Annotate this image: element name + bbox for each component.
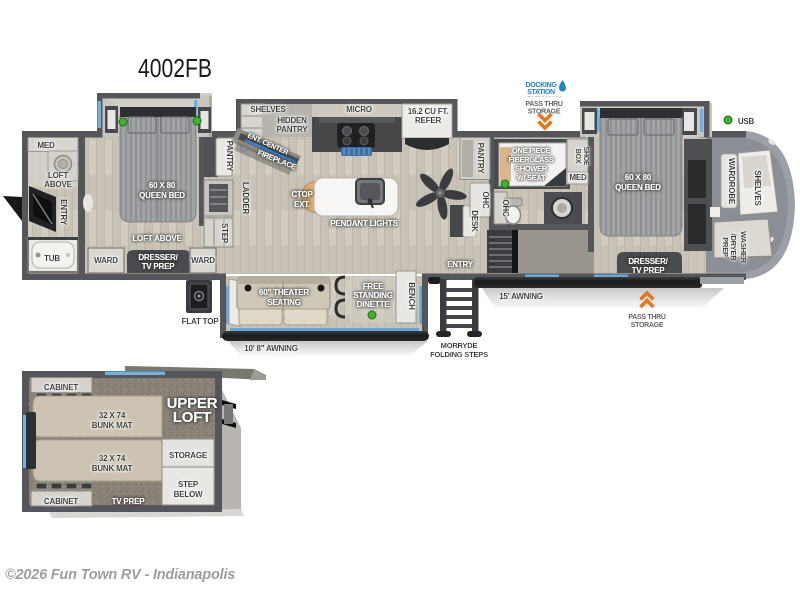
- svg-text:LADDER: LADDER: [241, 182, 250, 215]
- svg-text:EXT.: EXT.: [294, 200, 310, 209]
- svg-text:DESK: DESK: [470, 210, 479, 232]
- svg-text:TUB: TUB: [44, 254, 60, 263]
- svg-text:BENCH: BENCH: [407, 282, 416, 310]
- svg-text:PASS THRU: PASS THRU: [628, 314, 665, 321]
- svg-text:ABOVE: ABOVE: [44, 180, 72, 189]
- svg-text:CABINET: CABINET: [44, 383, 78, 392]
- svg-text:WARDROBE: WARDROBE: [727, 158, 736, 205]
- svg-text:OHC: OHC: [481, 191, 490, 209]
- svg-text:WARD: WARD: [191, 256, 215, 265]
- svg-text:STORAGE: STORAGE: [631, 322, 664, 329]
- svg-text:DINETTE: DINETTE: [357, 300, 391, 309]
- svg-text:PREP: PREP: [721, 237, 730, 257]
- svg-text:SHOE: SHOE: [582, 146, 589, 166]
- svg-text:OHC: OHC: [501, 199, 510, 217]
- svg-text:FREE: FREE: [363, 282, 384, 291]
- svg-text:REFER: REFER: [415, 116, 442, 125]
- svg-text:SHELVES: SHELVES: [250, 105, 286, 114]
- svg-text:PANTRY: PANTRY: [277, 125, 309, 134]
- svg-text:BELOW: BELOW: [174, 490, 203, 499]
- svg-text:USB: USB: [738, 117, 755, 126]
- svg-text:ENTRY: ENTRY: [59, 199, 68, 226]
- svg-text:LOFT ABOVE: LOFT ABOVE: [132, 234, 182, 243]
- svg-text:STATION: STATION: [527, 89, 555, 96]
- svg-text:SEATING: SEATING: [267, 298, 301, 307]
- svg-text:10' 8" AWNING: 10' 8" AWNING: [244, 344, 297, 353]
- svg-text:FOLDING STEPS: FOLDING STEPS: [430, 350, 488, 359]
- svg-text:SHOWER: SHOWER: [515, 164, 548, 173]
- svg-text:LOFT: LOFT: [48, 171, 68, 180]
- svg-text:DOCKING: DOCKING: [526, 82, 558, 89]
- svg-text:BUNK MAT: BUNK MAT: [92, 421, 133, 430]
- svg-text:32 X 74: 32 X 74: [99, 411, 126, 420]
- svg-text:MICRO: MICRO: [346, 105, 372, 114]
- svg-text:BUNK MAT: BUNK MAT: [92, 464, 133, 473]
- svg-text:DRESSER/: DRESSER/: [138, 253, 178, 262]
- svg-text:60 X 80: 60 X 80: [625, 173, 652, 182]
- svg-text:MORRYDE: MORRYDE: [441, 341, 478, 350]
- svg-text:CTOP: CTOP: [291, 190, 313, 199]
- svg-text:PASS THRU: PASS THRU: [525, 101, 562, 108]
- svg-text:SHELVES: SHELVES: [753, 170, 762, 206]
- svg-text:PANTRY: PANTRY: [476, 143, 485, 175]
- svg-text:MED: MED: [569, 173, 587, 182]
- svg-text:CABINET: CABINET: [44, 497, 78, 506]
- svg-text:15' AWNING: 15' AWNING: [499, 292, 543, 301]
- svg-text:W/ SEAT: W/ SEAT: [517, 173, 546, 182]
- svg-text:TV PREP: TV PREP: [142, 262, 176, 271]
- svg-text:DRESSER/: DRESSER/: [628, 257, 668, 266]
- svg-text:PENDANT LIGHTS: PENDANT LIGHTS: [330, 219, 398, 228]
- svg-text:4002FB: 4002FB: [138, 53, 212, 83]
- svg-text:©2026 Fun Town RV - Indianapol: ©2026 Fun Town RV - Indianapolis: [5, 567, 235, 583]
- svg-text:MED: MED: [37, 141, 55, 150]
- svg-text:STEP: STEP: [220, 223, 229, 244]
- svg-text:32 X 74: 32 X 74: [99, 454, 126, 463]
- svg-text:16.2 CU FT.: 16.2 CU FT.: [408, 107, 448, 116]
- svg-text:PANTRY: PANTRY: [225, 141, 234, 173]
- svg-text:ONE PIECE: ONE PIECE: [512, 146, 550, 155]
- svg-text:TV PREP: TV PREP: [112, 497, 146, 506]
- svg-text:LOFT: LOFT: [173, 409, 211, 426]
- svg-text:TV PREP: TV PREP: [632, 266, 666, 275]
- svg-text:60" THEATER: 60" THEATER: [259, 288, 309, 297]
- svg-text:STEP: STEP: [178, 480, 199, 489]
- svg-text:STANDING: STANDING: [353, 291, 393, 300]
- svg-text:WARD: WARD: [94, 256, 118, 265]
- svg-text:FIBERGLASS: FIBERGLASS: [508, 155, 553, 164]
- svg-text:QUEEN BED: QUEEN BED: [139, 191, 185, 200]
- svg-text:QUEEN BED: QUEEN BED: [615, 183, 661, 192]
- svg-text:HIDDEN: HIDDEN: [277, 116, 307, 125]
- svg-text:FLAT TOP: FLAT TOP: [182, 317, 220, 326]
- svg-text:WASHER: WASHER: [739, 231, 748, 264]
- svg-text:STORAGE: STORAGE: [169, 451, 208, 460]
- svg-text:STORAGE: STORAGE: [528, 109, 561, 116]
- svg-text:60 X 80: 60 X 80: [149, 181, 176, 190]
- svg-text:BOX: BOX: [574, 149, 581, 164]
- svg-text:ENTRY: ENTRY: [447, 260, 474, 269]
